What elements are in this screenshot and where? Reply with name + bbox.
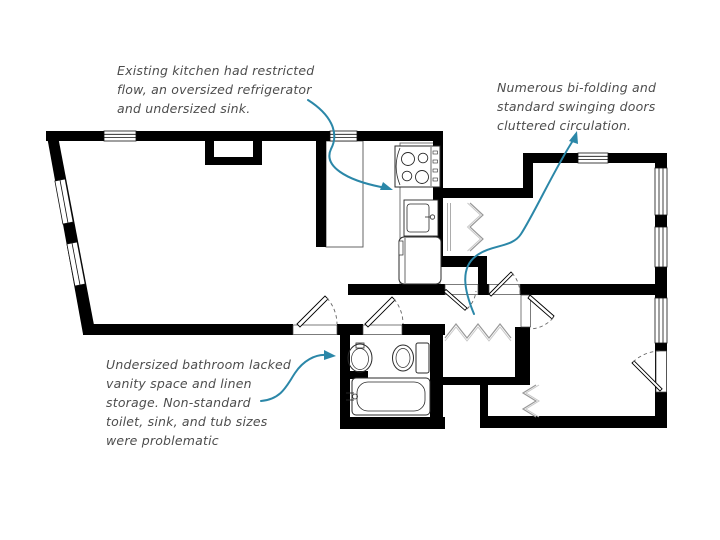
bathroom-door <box>365 297 403 327</box>
kitchen-sink-icon <box>404 200 438 236</box>
window-right-1 <box>655 168 667 215</box>
bathroom-fixtures <box>346 343 430 415</box>
peninsula-counter <box>326 141 363 247</box>
annotation-line: Numerous bi-folding and <box>497 78 656 97</box>
annotation-line: cluttered circulation. <box>497 116 656 135</box>
annotation-line: Existing kitchen had restricted <box>117 61 314 80</box>
annotation-line: flow, an oversized refrigerator <box>117 80 314 99</box>
annotation-doors: Numerous bi-folding and standard swingin… <box>497 78 656 135</box>
annotation-bathroom: Undersized bathroom lacked vanity space … <box>106 355 291 450</box>
annotation-line: Undersized bathroom lacked <box>106 355 291 374</box>
bifold-hall-closet <box>445 324 511 341</box>
bedroom2-door <box>528 295 554 329</box>
floor-plan-canvas: Existing kitchen had restricted flow, an… <box>0 0 720 540</box>
window-bedroom-top <box>578 153 608 163</box>
bifold-closet-1 <box>448 203 484 251</box>
annotation-line: toilet, sink, and tub sizes <box>106 412 291 431</box>
window-top-1 <box>104 131 136 141</box>
annotation-line: standard swinging doors <box>497 97 656 116</box>
window-right-3 <box>655 298 667 343</box>
stove-icon <box>395 146 440 187</box>
annotation-line: storage. Non-standard <box>106 393 291 412</box>
toilet-icon <box>393 343 430 373</box>
annotation-line: and undersized sink. <box>117 99 314 118</box>
window-right-2 <box>655 227 667 267</box>
annotation-kitchen: Existing kitchen had restricted flow, an… <box>117 61 314 118</box>
refrigerator-icon <box>399 237 441 284</box>
window-slant-2 <box>67 242 85 286</box>
bifold-closet-2 <box>523 385 539 417</box>
bathroom-sink-icon <box>348 343 372 372</box>
entry-door <box>297 296 337 327</box>
bathtub-icon <box>346 378 430 415</box>
annotation-line: vanity space and linen <box>106 374 291 393</box>
annotation-line: were problematic <box>106 431 291 450</box>
